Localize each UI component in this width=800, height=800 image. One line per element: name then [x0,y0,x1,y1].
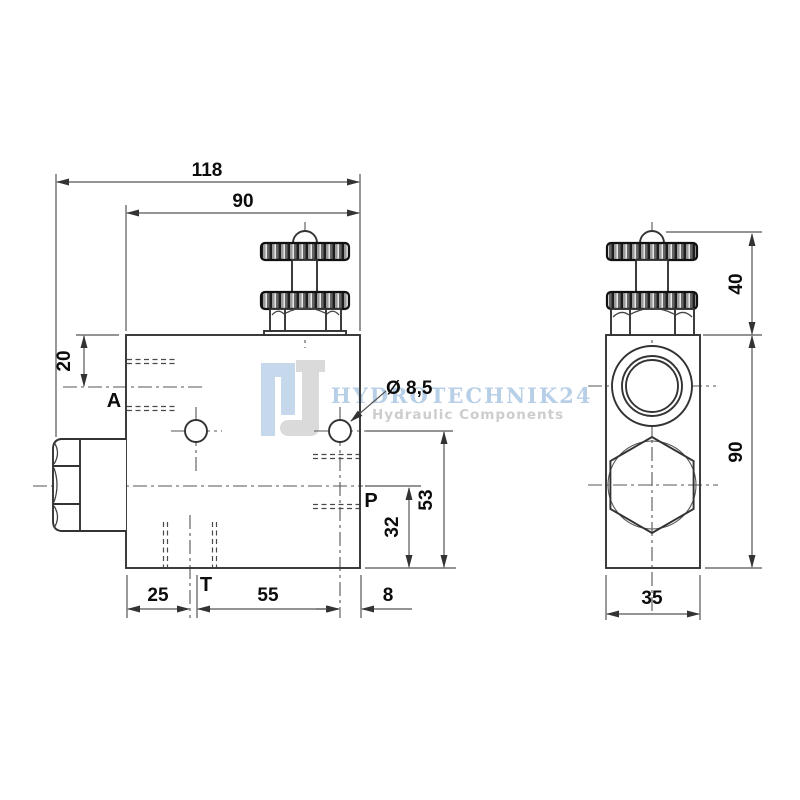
port-a-hidden-thread [127,360,177,411]
mounting-hole-right [329,420,351,442]
dimension-55: 55 [197,575,338,618]
dimension-8: 8 [316,575,412,618]
hex-plug-side [53,439,126,531]
mounting-hole-left [185,420,207,442]
knob-knurled-disc-top [261,243,349,260]
svg-text:8: 8 [383,585,394,606]
svg-text:35: 35 [641,588,663,609]
dimension-25: 25 [127,575,189,618]
svg-text:53: 53 [416,489,437,510]
port-label-p: P [364,490,377,512]
dimension-90-side: 90 [705,336,762,568]
knob-hex-locknut-side [611,309,694,336]
adjustment-knob-side [607,231,697,335]
threaded-port-side [612,346,692,426]
knob-knurled-disc-bottom-side [607,292,697,309]
dimension-20: 20 [54,335,119,386]
svg-text:118: 118 [192,160,223,181]
front-view: 118 90 20 25 55 8 [33,160,456,618]
side-view: 40 90 35 [588,222,762,620]
valve-technical-drawing: HYDROTECHNIK24 Hydraulic Components [0,0,800,800]
svg-text:25: 25 [147,585,169,606]
svg-text:32: 32 [382,516,403,537]
watermark-logo [261,360,325,436]
svg-text:20: 20 [54,350,75,371]
svg-text:90: 90 [726,441,747,462]
dimension-35: 35 [606,575,700,620]
knob-stem [292,260,317,292]
knob-dome [293,231,317,243]
svg-text:55: 55 [257,585,279,606]
knob-knurled-disc-top-side [607,243,697,260]
dimension-32: 32 [365,486,456,568]
port-p-hidden-thread [313,455,360,509]
port-label-t: T [200,574,212,596]
knob-hex-locknut-front [264,308,346,335]
knob-dome-side [640,231,664,243]
technical-drawing-page: HYDROTECHNIK24 Hydraulic Components [0,0,800,800]
knob-knurled-disc-bottom [261,292,349,309]
svg-text:90: 90 [232,191,253,212]
knob-stem-side [636,260,668,292]
watermark-tagline-text: Hydraulic Components [372,407,564,423]
svg-text:40: 40 [726,273,747,294]
adjustment-knob-front [261,231,349,335]
svg-text:Ø 8,5: Ø 8,5 [386,378,433,399]
port-label-a: A [107,390,121,412]
